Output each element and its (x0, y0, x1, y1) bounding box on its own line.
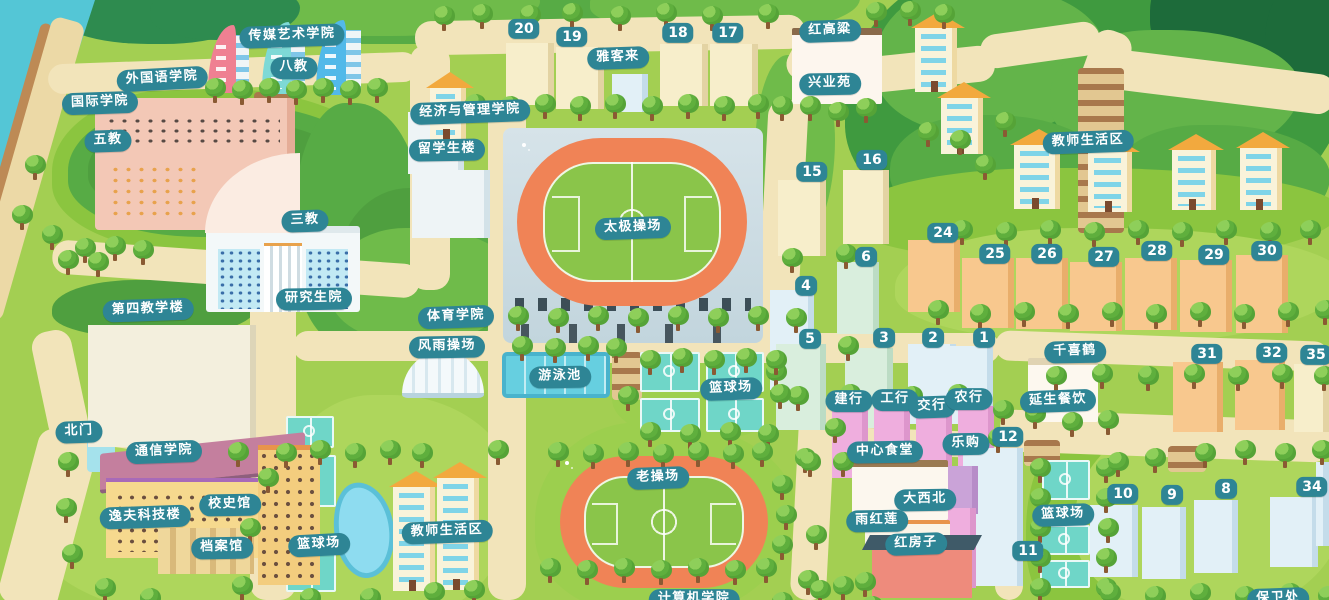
label-chuanmei[interactable]: 传媒艺术学院 (239, 23, 345, 48)
building-number-badge-1[interactable]: 1 (973, 328, 995, 348)
building-number-badge-29[interactable]: 29 (1198, 245, 1229, 265)
label-xingyeyuan[interactable]: 兴业苑 (799, 73, 861, 96)
building-number-badge-6[interactable]: 6 (855, 247, 877, 267)
label-bajiao[interactable]: 八教 (270, 57, 317, 79)
label-beimen[interactable]: 北门 (55, 420, 103, 443)
label-tongxinxueyuan[interactable]: 通信学院 (126, 440, 203, 464)
label-baoweichu[interactable]: 保卫处 (1247, 587, 1309, 600)
building-number-badge-30[interactable]: 30 (1251, 241, 1282, 261)
label-jiaoshi-right[interactable]: 教师生活区 (1042, 130, 1133, 155)
label-lanqiu-left[interactable]: 篮球场 (288, 532, 351, 557)
label-lanqiu-mid[interactable]: 篮球场 (700, 377, 762, 401)
building-number-badge-20[interactable]: 20 (508, 19, 539, 39)
label-laocaochang[interactable]: 老操场 (627, 466, 689, 490)
label-fengyucaochang[interactable]: 风雨操场 (409, 335, 485, 358)
building-number-badge-25[interactable]: 25 (979, 244, 1010, 264)
building-number-badge-32[interactable]: 32 (1256, 343, 1287, 363)
label-taijicaochang[interactable]: 太极操场 (595, 216, 672, 240)
label-yakelai[interactable]: 雅客来 (587, 46, 649, 70)
building-number-badge-26[interactable]: 26 (1031, 244, 1062, 264)
label-xiaoshiguan[interactable]: 校史馆 (199, 494, 261, 517)
label-yifukejilou[interactable]: 逸夫科技楼 (99, 505, 190, 530)
building-number-badge-4[interactable]: 4 (795, 276, 817, 296)
label-guoji[interactable]: 国际学院 (62, 91, 139, 115)
building-number-badge-35[interactable]: 35 (1300, 345, 1329, 365)
building-number-badge-18[interactable]: 18 (662, 23, 693, 43)
building-number-badge-28[interactable]: 28 (1141, 241, 1172, 261)
building-number-badge-34[interactable]: 34 (1296, 477, 1327, 497)
label-honggaoliang[interactable]: 红高粱 (799, 19, 861, 43)
label-liuxuesheng[interactable]: 留学生楼 (409, 138, 485, 161)
label-disijiaoxuelou[interactable]: 第四教学楼 (102, 298, 193, 323)
building-number-badge-15[interactable]: 15 (796, 162, 827, 182)
label-legou[interactable]: 乐购 (942, 433, 989, 456)
campus-map: 传媒艺术学院八教外国语学院国际学院五教经济与管理学院留学生楼雅客来红高粱兴业苑教… (0, 0, 1329, 600)
label-jiaoshi-bottom[interactable]: 教师生活区 (401, 520, 492, 545)
label-jisuanji[interactable]: 计算机学院 (649, 589, 740, 600)
label-danganguan[interactable]: 档案馆 (191, 537, 253, 560)
building-number-badge-12[interactable]: 12 (992, 427, 1023, 447)
label-yuhonglian[interactable]: 雨红莲 (846, 510, 908, 533)
label-youyongchi[interactable]: 游泳池 (529, 366, 591, 389)
labels-layer: 传媒艺术学院八教外国语学院国际学院五教经济与管理学院留学生楼雅客来红高粱兴业苑教… (0, 0, 1329, 600)
building-number-badge-19[interactable]: 19 (556, 27, 587, 47)
label-waiguoyu[interactable]: 外国语学院 (116, 66, 208, 93)
label-yanjiushengyuan[interactable]: 研究生院 (276, 287, 352, 310)
label-jingguan[interactable]: 经济与管理学院 (410, 99, 530, 125)
building-number-badge-17[interactable]: 17 (712, 23, 743, 43)
label-sanjiao[interactable]: 三教 (281, 209, 329, 232)
label-qianxihe[interactable]: 千喜鹤 (1044, 341, 1106, 364)
label-zhongxinshitang[interactable]: 中心食堂 (847, 440, 923, 463)
label-wujiao[interactable]: 五教 (84, 129, 132, 152)
building-number-badge-9[interactable]: 9 (1161, 485, 1183, 505)
building-number-badge-2[interactable]: 2 (922, 328, 944, 348)
label-daxibei[interactable]: 大西北 (894, 489, 956, 512)
label-jianhang[interactable]: 建行 (825, 390, 872, 412)
building-number-badge-8[interactable]: 8 (1215, 479, 1237, 499)
building-number-badge-11[interactable]: 11 (1012, 541, 1043, 561)
building-number-badge-5[interactable]: 5 (799, 329, 821, 349)
label-hongfangzi[interactable]: 红房子 (885, 532, 947, 556)
label-tiyuxueyuan[interactable]: 体育学院 (418, 305, 495, 329)
label-lanqiu-right[interactable]: 篮球场 (1032, 503, 1094, 527)
building-number-badge-10[interactable]: 10 (1107, 484, 1138, 504)
label-nonghang[interactable]: 农行 (945, 388, 992, 410)
building-number-badge-27[interactable]: 27 (1088, 247, 1119, 267)
building-number-badge-24[interactable]: 24 (927, 223, 958, 243)
building-number-badge-3[interactable]: 3 (873, 328, 895, 348)
building-number-badge-16[interactable]: 16 (856, 150, 887, 170)
label-yanshengcanyin[interactable]: 延生餐饮 (1020, 389, 1097, 413)
building-number-badge-31[interactable]: 31 (1191, 344, 1222, 364)
